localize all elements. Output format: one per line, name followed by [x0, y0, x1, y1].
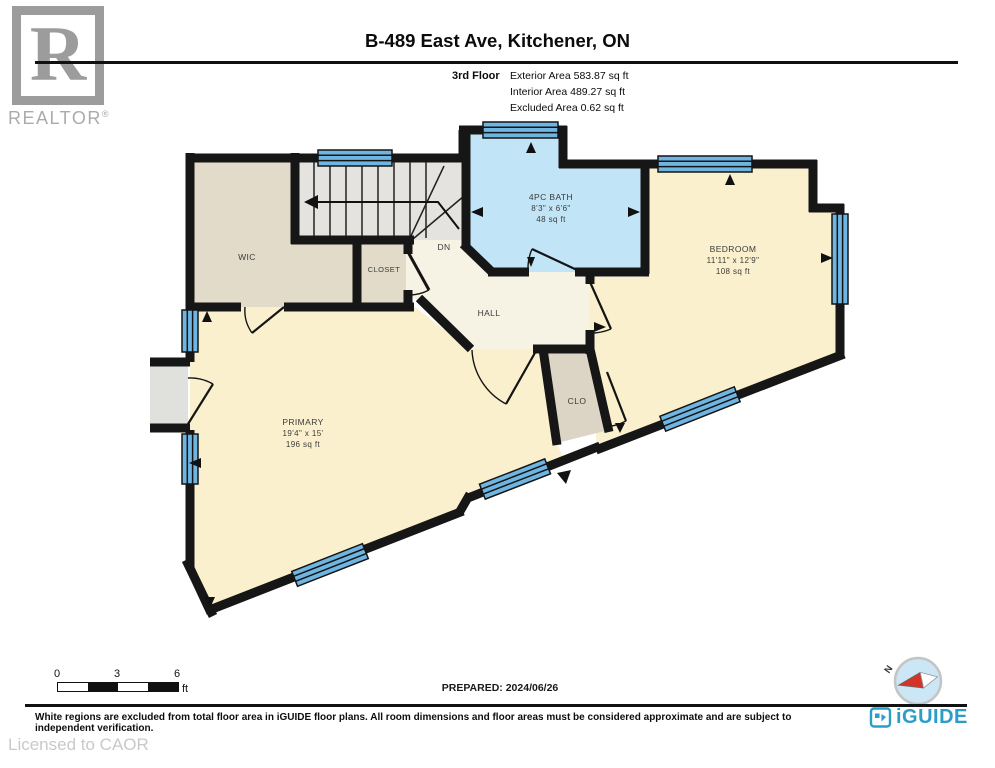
bath-label: 4PC BATH [529, 192, 573, 202]
stairs-dn-label: DN [437, 242, 450, 252]
floor-plan-drawing: WIC CLOSET DN 4PC BATH 8'3" x 6'6" 48 sq… [0, 0, 995, 768]
window-primary-left-upper [182, 310, 198, 352]
primary-room [190, 307, 563, 612]
iguide-logo-icon [869, 706, 892, 729]
compass: N [882, 658, 941, 704]
scale-segment [88, 683, 118, 691]
disclaimer-text: White regions are excluded from total fl… [35, 712, 835, 734]
bedroom-area: 108 sq ft [716, 267, 751, 276]
footer-divider [25, 704, 967, 707]
scale-tick-6: 6 [165, 668, 189, 680]
window-stairs-top [318, 150, 392, 166]
window-bedroom-top [658, 156, 752, 172]
stairs-area [295, 158, 463, 240]
hall-label: HALL [478, 308, 501, 318]
iguide-logo: iGUIDE [869, 706, 968, 729]
arrow-up-right-icon [557, 470, 571, 484]
closet-label: CLOSET [368, 265, 400, 274]
primary-dims: 19'4" x 15' [283, 429, 324, 438]
compass-north-label: N [882, 663, 895, 675]
bath-area: 48 sq ft [536, 215, 566, 224]
window-bedroom-right [832, 214, 848, 304]
room-fills [150, 130, 840, 612]
floor-plan-page: R REALTOR® B-489 East Ave, Kitchener, ON… [0, 0, 995, 768]
scale-unit-label: ft [182, 683, 188, 695]
wic-label: WIC [238, 252, 256, 262]
scale-bar [57, 682, 179, 692]
scale-segment [58, 683, 88, 691]
window-primary-left-lower [182, 434, 198, 484]
primary-label: PRIMARY [282, 417, 323, 427]
bedroom-dims: 11'11" x 12'9" [707, 256, 760, 265]
bedroom-label: BEDROOM [710, 244, 757, 254]
clo-label: CLO [568, 396, 587, 406]
scale-segment [118, 683, 148, 691]
primary-area: 196 sq ft [286, 440, 321, 449]
scale-tick-0: 0 [45, 668, 69, 680]
prepared-date: PREPARED: 2024/06/26 [400, 682, 600, 694]
scale-tick-3: 3 [105, 668, 129, 680]
balcony-nook [150, 364, 188, 426]
scale-segment [148, 683, 178, 691]
bath-dims: 8'3" x 6'6" [531, 204, 570, 213]
window-bath-top [483, 122, 558, 138]
iguide-wordmark: iGUIDE [896, 706, 968, 729]
license-text: Licensed to CAOR [8, 735, 149, 755]
